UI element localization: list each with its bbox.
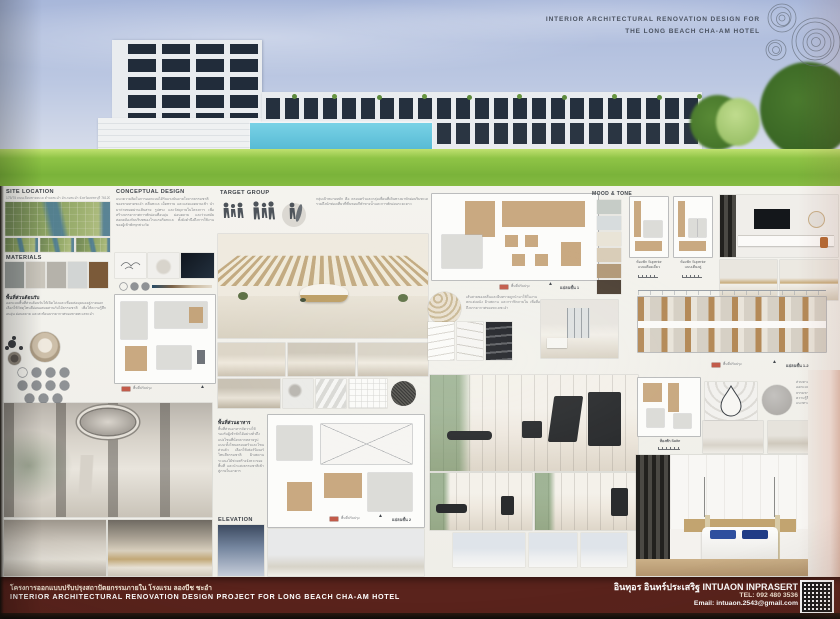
elevation-image-light <box>268 529 424 576</box>
superior-twin-line1: ห้องพัก Superior <box>680 260 705 264</box>
color-swatch <box>597 200 621 214</box>
suite-label: ห้องพัก Suite <box>648 439 692 444</box>
color-swatch <box>597 248 621 262</box>
lobby-floor <box>218 296 428 338</box>
guestroom-corridor-plan <box>638 297 826 352</box>
plan-room-block <box>643 383 662 403</box>
photo-bottom-edge <box>0 613 840 619</box>
plan2-legend-color <box>330 517 338 521</box>
suite-pillow-right <box>742 530 768 539</box>
gym-render-small-1 <box>430 473 532 530</box>
lobby-plants <box>238 292 248 300</box>
board-title-line2: THE LONG BEACH CHA-AM HOTEL <box>625 28 760 35</box>
plan-room-block <box>197 350 205 364</box>
bird-sketch-icon <box>115 253 146 278</box>
round-furniture-photo-2 <box>8 352 21 365</box>
suite-wardrobe-wall <box>670 455 808 529</box>
color-swatch <box>597 232 621 246</box>
lobby-round-counter <box>300 284 348 302</box>
plan-room-block <box>121 302 147 339</box>
presentation-board-photo: INTERIOR ARCHITECTURAL RENOVATION DESIGN… <box>0 0 840 619</box>
spiral-staircase-shape <box>50 455 123 495</box>
scale-bar <box>658 447 680 450</box>
texture-sketch-sample <box>283 379 313 408</box>
plan-room-block <box>535 254 548 266</box>
plan-room-block <box>512 254 525 266</box>
board-right-edge <box>808 370 840 578</box>
plan-room-block <box>189 307 203 323</box>
north-arrow-icon: ▲ <box>548 282 553 287</box>
site-location-heading: SITE LOCATION <box>6 189 54 195</box>
color-swatch <box>68 262 87 288</box>
plan-room-block <box>525 235 538 247</box>
lounge-render <box>541 300 618 358</box>
plan-room-block <box>698 219 706 237</box>
wing-deck-trees <box>292 94 297 99</box>
plan-room-block <box>157 346 191 369</box>
chandelier-rings <box>81 409 135 435</box>
texture-grid-tile-sample <box>349 379 387 408</box>
materials-swatch-row <box>5 262 108 288</box>
qr-code-pattern <box>802 582 832 612</box>
tree-round-light <box>716 98 760 146</box>
concept-symbol-dots <box>120 283 127 290</box>
gym-render-small-2 <box>535 473 638 530</box>
color-swatch <box>89 262 108 288</box>
wing-window-row-upper <box>266 98 698 119</box>
wave-pattern-circle <box>428 292 461 325</box>
gym-equipment-shape <box>588 392 621 446</box>
furniture-symbol-grid <box>18 368 27 377</box>
color-swatch <box>597 280 621 294</box>
dining-heading: พื้นที่ส่วนอาหาร <box>218 419 251 427</box>
target-group-heading: TARGET GROUP <box>220 190 269 196</box>
conceptual-design-heading: CONCEPTUAL DESIGN <box>116 189 185 195</box>
bedroom-curtain <box>720 195 736 257</box>
gym-equipment-shape <box>547 396 583 442</box>
stone-circle-sample <box>762 385 792 415</box>
superior-twin-label: ห้องพัก Superior แบบเตียงคู่ <box>670 260 716 270</box>
concept-gradient-bar <box>152 285 212 288</box>
plan-room-block <box>679 241 706 251</box>
gym-equipment-shape <box>447 431 493 441</box>
plan-room-block <box>465 201 495 237</box>
round-furniture-photo-1 <box>30 332 60 362</box>
north-arrow-icon: ▲ <box>378 514 383 519</box>
wave-concept-note: เส้นสายของคลื่นและผืนทรายถูกนำมาใช้ในงาน… <box>466 295 540 311</box>
suite-pendant-lamp-right <box>774 477 775 517</box>
plan-room-block <box>634 201 642 237</box>
plan-room-block <box>125 346 147 371</box>
plan-room-block <box>674 414 691 428</box>
suite-bathroom-render <box>703 421 763 453</box>
plan-room-block <box>561 242 581 266</box>
qr-code <box>800 580 834 614</box>
plan12-legend-label: พื้นที่ปรับปรุง <box>723 362 742 367</box>
superior-single-label: ห้องพัก Superior แบบเตียงเดี่ยว <box>626 260 672 270</box>
scale-bar <box>638 275 658 278</box>
tv-screen <box>754 209 790 229</box>
concept-image-bird-sketch <box>115 253 146 278</box>
plan-legend-label: พื้นที่ปรับปรุง <box>133 386 152 391</box>
double-height-void <box>321 424 411 464</box>
site-satellite-image-3 <box>76 238 110 252</box>
plan-room-block <box>368 473 412 511</box>
plan-room-block <box>287 482 312 511</box>
plan12-legend-color <box>712 363 720 367</box>
atrium-lobby-render <box>4 403 212 517</box>
plan-room-block <box>442 235 482 268</box>
plan1-legend-label: พื้นที่ปรับปรุง <box>511 284 530 289</box>
furniture-plan-icon <box>8 340 16 348</box>
north-arrow-icon: ▲ <box>200 385 205 390</box>
color-swatch <box>26 262 45 288</box>
elevation-heading: ELEVATION <box>218 517 253 523</box>
lobby-slatted-ceiling <box>218 256 428 286</box>
elevation-sketch-3 <box>581 533 627 567</box>
wave-sketch-panel-1 <box>428 322 454 360</box>
mood-swatch-column <box>597 200 621 294</box>
target-group-figures-icon <box>220 199 312 231</box>
materials-heading: MATERIALS <box>6 255 42 261</box>
dining-render-4 <box>218 379 280 408</box>
main-lobby-render <box>218 234 428 338</box>
color-swatch <box>597 216 621 230</box>
suite-pillow-left <box>710 530 736 539</box>
floor-plan-level2 <box>268 415 424 527</box>
footer-tel: TEL: 092 480 3536 <box>739 592 798 599</box>
north-arrow-icon: ▲ <box>772 360 777 365</box>
superior-twin-line2: แบบเตียงคู่ <box>685 265 702 269</box>
elevation-sketch-2 <box>529 533 577 567</box>
gym-equipment-shape <box>611 488 627 517</box>
wave-sketch-panel-2 <box>457 322 483 360</box>
floor-plan-lobby <box>115 295 215 383</box>
infinity-pool <box>250 122 432 151</box>
board-title-line1: INTERIOR ARCHITECTURAL RENOVATION DESIGN… <box>546 16 760 23</box>
footer-email: Email: intuaon.2543@gmail.com <box>694 600 798 607</box>
lounge-glazing <box>567 308 590 338</box>
concept-image-dark <box>181 253 214 278</box>
target-group-body: กลุ่มเป้าหมายหลัก คือ ครอบครัวและกลุ่มเพ… <box>316 197 428 208</box>
plan-room-block <box>689 219 697 237</box>
superior-single-line1: ห้องพัก Superior <box>636 260 661 264</box>
plan2-legend-label: พื้นที่ปรับปรุง <box>341 516 360 521</box>
plan12-label: แปลนชั้น 1-2 <box>786 362 809 369</box>
suite-wood-floor <box>636 559 808 576</box>
floor-plan-level1 <box>432 194 598 280</box>
lobby-render-small-1 <box>4 520 106 576</box>
plan-room-block <box>644 221 661 237</box>
suite-room-plan <box>638 378 700 436</box>
plan-room-block <box>277 426 311 460</box>
plan-legend-color <box>122 387 130 391</box>
color-swatch <box>5 262 24 288</box>
plan-room-block <box>635 241 662 251</box>
plan1-legend-color <box>500 285 508 289</box>
bedroom-tv-wall-render <box>720 195 838 257</box>
plan-room-block <box>647 409 664 426</box>
dining-body: พื้นที่ส่วนอาหารจัดวางให้รองรับผู้เข้าพั… <box>218 427 264 474</box>
gym-equipment-shape <box>436 504 467 513</box>
gym-equipment-shape <box>501 496 513 515</box>
gym-equipment-shape <box>522 421 543 438</box>
plan-room-block <box>324 473 361 498</box>
reception-body: ออกแบบพื้นที่ส่วนต้อนรับให้เปิดโล่งและเช… <box>6 301 106 317</box>
plan1-label: แปลนชั้น 1 <box>560 284 579 291</box>
gym-render-large <box>430 375 638 471</box>
mesh-circle-sample <box>391 381 416 406</box>
elevation-image-dark <box>218 525 264 576</box>
conceptual-design-body: แนวความคิดในการออกแบบได้รับแรงบันดาลใจจา… <box>116 197 214 229</box>
elevation-sketch-1 <box>453 533 525 567</box>
plan-room-block <box>668 383 679 412</box>
corridor-plan-dimension-ticks <box>638 290 826 295</box>
plan2-label: แปลนชั้น 2 <box>392 516 411 523</box>
lawn <box>0 149 840 186</box>
superior-single-line2: แบบเตียงเดี่ยว <box>638 265 660 269</box>
color-swatch <box>597 264 621 278</box>
suite-curtain <box>636 455 670 576</box>
mood-tone-heading: MOOD & TONE <box>592 191 632 197</box>
droplet-texture-tile <box>705 382 757 420</box>
suite-pendant-lamp-left <box>704 477 705 517</box>
plan-room-block <box>678 201 686 237</box>
site-satellite-image-large <box>5 202 110 236</box>
footer-project-title-en: INTERIOR ARCHITECTURAL RENOVATION DESIGN… <box>10 592 400 601</box>
superior-twin-room-plan <box>674 197 712 257</box>
reception-counter-render <box>108 520 212 576</box>
dining-render-2 <box>288 343 355 376</box>
photo-left-edge <box>0 186 4 619</box>
site-address: 175/75 ถนนเลียบชายทะเล ตำบลชะอำ อำเภอชะอ… <box>6 196 110 201</box>
plan-room-block <box>505 235 518 247</box>
droplet-icon <box>705 382 757 420</box>
texture-3d-panel-sample <box>316 379 346 408</box>
scale-bar <box>682 275 702 278</box>
lounge-sofa <box>547 338 567 347</box>
round-mirror <box>808 211 825 228</box>
site-satellite-image-1 <box>5 238 38 252</box>
orange-chair <box>820 237 828 248</box>
site-satellite-image-2 <box>40 238 74 252</box>
dining-render-3 <box>358 343 428 376</box>
plan-room-block <box>502 201 585 227</box>
wave-ink-panel-dark <box>486 322 512 360</box>
dining-render-1 <box>218 343 285 376</box>
superior-single-room-plan <box>630 197 668 257</box>
spiral-circles-logo-icon <box>756 2 840 68</box>
concept-image-shell <box>148 253 179 278</box>
color-swatch <box>47 262 66 288</box>
suite-bedroom-render-large <box>636 455 808 576</box>
